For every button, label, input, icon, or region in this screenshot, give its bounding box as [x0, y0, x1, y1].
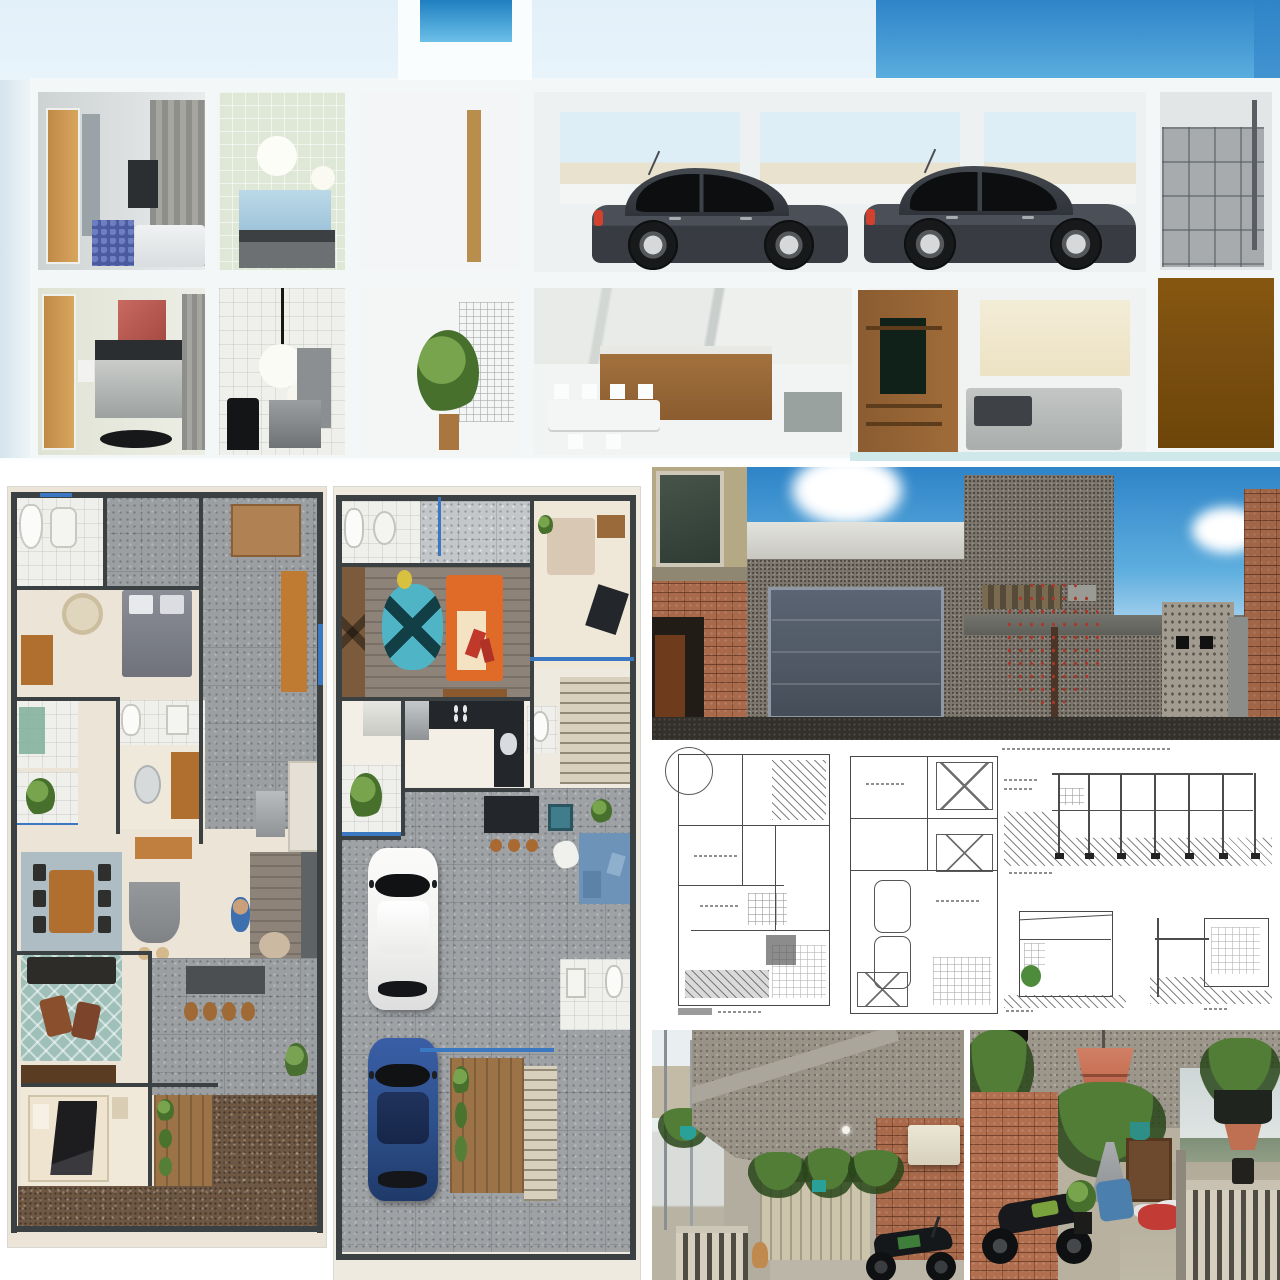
island-stools — [490, 839, 502, 852]
island-counter — [129, 882, 180, 943]
staircase — [560, 677, 635, 784]
dining-table — [49, 870, 94, 933]
garage — [534, 92, 1146, 272]
wall — [336, 495, 636, 501]
black-fixture — [227, 398, 259, 450]
wall — [14, 586, 198, 590]
upper-bathroom — [219, 92, 345, 270]
columns — [1058, 773, 1060, 855]
car-taillight — [594, 210, 603, 226]
grey-tile-hall — [420, 501, 530, 564]
closet-room — [530, 501, 636, 668]
orange-sofa — [446, 575, 503, 680]
mirror — [82, 114, 100, 236]
upper-hall — [359, 92, 520, 270]
curtain — [182, 294, 205, 450]
legend-text — [718, 1011, 762, 1013]
void-x — [936, 762, 993, 810]
kitchen-dining — [534, 288, 852, 455]
section-render-panel — [0, 0, 1280, 461]
round-rug-small — [259, 932, 290, 959]
brown-door — [655, 635, 685, 719]
stove-burners — [454, 705, 459, 713]
concrete-column — [1176, 1150, 1186, 1280]
window-marker — [530, 657, 634, 661]
dining-rug — [21, 852, 123, 951]
cobble-gate-block — [1162, 602, 1234, 719]
potted-plant — [1066, 1180, 1096, 1214]
bathroom-top — [340, 501, 420, 564]
stair-tower-window — [420, 0, 512, 42]
wall — [401, 701, 405, 836]
room-label — [936, 900, 980, 902]
tv-sideboard — [21, 1065, 116, 1083]
moto-wheel — [866, 1252, 896, 1280]
legend-swatch — [678, 1008, 712, 1015]
wall — [340, 697, 530, 701]
plan-wall-line — [742, 755, 743, 885]
room-label — [694, 855, 739, 857]
wall — [340, 563, 530, 567]
car-handle — [946, 216, 958, 219]
tv-wood-panel — [858, 290, 958, 454]
slab-edge — [652, 567, 747, 581]
sink — [375, 513, 394, 543]
black-counter — [429, 700, 494, 730]
bbq-patio — [148, 958, 320, 1095]
wall — [336, 1254, 636, 1260]
gate-bay — [1160, 92, 1272, 270]
pillow — [33, 1104, 48, 1129]
green-shower — [19, 707, 44, 755]
balustrade-right — [1186, 1180, 1280, 1280]
carport-photo-panel — [652, 1030, 964, 1280]
cad-section-long — [1004, 760, 1272, 868]
round-rug — [62, 593, 103, 635]
black-blanket — [50, 1101, 97, 1176]
patio-stools — [184, 1002, 198, 1021]
dark-blanket — [974, 396, 1032, 426]
toilet — [607, 967, 620, 996]
fire-pit — [548, 804, 572, 831]
terrace-photo-panel — [970, 1030, 1280, 1280]
wall — [336, 495, 342, 1260]
drawing-title — [1006, 1010, 1033, 1012]
car-roof — [377, 1092, 429, 1144]
blue-bag — [1095, 1178, 1134, 1222]
winter-garden — [359, 288, 520, 455]
aqua-ground-line — [850, 452, 1280, 461]
chairs-right — [98, 864, 111, 882]
facade-render-panel — [652, 467, 1280, 740]
garage-door — [768, 587, 944, 719]
lower-bedroom — [38, 288, 205, 455]
hanging-fern — [848, 1150, 904, 1194]
kitchen-counter — [288, 761, 320, 852]
car-handle — [740, 217, 752, 220]
plan-wall-line — [927, 757, 928, 870]
cad-plan-1 — [678, 754, 830, 1006]
stone-hall — [103, 495, 198, 586]
car-dark-1 — [592, 166, 848, 270]
brown-armchair — [39, 994, 74, 1038]
cad-section-b — [1150, 912, 1272, 1006]
pot-rim — [1074, 1074, 1136, 1077]
note-text — [1004, 779, 1039, 781]
moto-wheel — [982, 1228, 1018, 1264]
wood-door — [48, 110, 78, 262]
mirror — [369, 1071, 374, 1079]
office-chair — [136, 767, 159, 802]
desk — [171, 752, 199, 819]
bush — [285, 1043, 307, 1079]
floor-line — [1019, 939, 1112, 940]
gate-fittings — [1176, 636, 1189, 649]
teal-pot — [680, 1126, 696, 1140]
hatch — [1211, 927, 1260, 974]
wall — [148, 951, 152, 1187]
cad-section-a — [1004, 902, 1126, 1010]
counter-leg — [494, 700, 524, 787]
hanging-fern — [748, 1152, 808, 1198]
neighbor-right-brick — [1244, 489, 1280, 719]
wardrobe — [340, 565, 365, 700]
home-office — [116, 745, 205, 829]
black-bin — [1232, 1158, 1254, 1184]
detail-circle — [665, 747, 713, 795]
patio-table — [231, 504, 301, 557]
side-garden — [340, 765, 401, 836]
rug-beige — [547, 518, 596, 575]
car-wheel — [764, 220, 814, 270]
drawing-title — [1204, 1008, 1228, 1010]
note-text — [1004, 788, 1033, 790]
white-bed — [135, 225, 205, 267]
toilet — [346, 510, 362, 546]
wall — [340, 836, 401, 840]
wall — [103, 495, 107, 586]
window-marker — [318, 624, 323, 685]
cyan-rug — [382, 584, 443, 670]
bed-headboard — [95, 340, 185, 360]
car-wheel — [904, 218, 956, 270]
wall — [317, 492, 323, 1233]
car-outline — [874, 936, 911, 989]
upper-bedroom — [38, 92, 205, 270]
bathroom-3 — [116, 700, 205, 746]
wall — [116, 697, 120, 834]
tall-plant — [417, 330, 479, 416]
mirror — [432, 1071, 437, 1079]
car-handle — [1022, 216, 1034, 219]
teal-bucket — [1130, 1122, 1150, 1140]
nightstand — [112, 1097, 127, 1119]
bedroom-2 — [21, 1087, 148, 1186]
rear-window — [378, 1171, 427, 1187]
fridge — [403, 700, 430, 740]
bbq-counter — [186, 966, 265, 993]
rear-steps — [524, 1066, 558, 1201]
hatch-deck — [772, 945, 826, 998]
void-x — [936, 834, 993, 872]
sink — [52, 509, 75, 545]
rear-window — [980, 300, 1130, 376]
sky-patch-right — [876, 0, 1256, 88]
ground-floor-plan-panel — [8, 487, 326, 1247]
plan-wall-line — [679, 825, 829, 826]
concrete-beam — [665, 1030, 899, 1111]
grey-bed — [122, 590, 192, 677]
counter-top — [239, 230, 335, 242]
wall — [530, 495, 534, 788]
balusters — [676, 1233, 748, 1280]
toilet — [21, 506, 41, 548]
nightstand — [78, 360, 94, 382]
planted-patio — [14, 772, 78, 825]
rear-bathroom — [560, 959, 633, 1030]
round-mirror-lights — [257, 136, 297, 176]
plan-wall-line — [691, 930, 829, 931]
window-marker — [40, 493, 72, 497]
car-wheel — [1050, 218, 1102, 270]
yellow-lamp — [397, 570, 412, 589]
glass-wall — [14, 823, 78, 826]
sofa-bed — [966, 388, 1122, 450]
car-roof — [377, 901, 429, 953]
footings — [1055, 853, 1064, 859]
car-dark-2 — [864, 164, 1136, 270]
tv-screen — [880, 318, 926, 394]
wall — [21, 1083, 218, 1087]
orange-bench — [281, 571, 306, 693]
plan-wall-line — [679, 885, 784, 886]
wood-door — [44, 296, 74, 448]
balustrade-left — [676, 1226, 748, 1280]
car-outline — [874, 880, 911, 933]
gravel-strip — [18, 1186, 320, 1229]
window-marker — [420, 1048, 555, 1052]
wall-unit — [908, 1125, 960, 1165]
white-cabinet — [363, 700, 401, 737]
hall-mat — [135, 837, 192, 860]
outer-wall-left — [0, 80, 32, 458]
ground-hatch — [1004, 760, 1272, 868]
mirror — [369, 880, 374, 888]
blue-sofa — [579, 833, 631, 904]
wall — [14, 951, 148, 955]
living-wood-floor — [340, 565, 530, 700]
downpipe — [1252, 100, 1257, 250]
drawing-title — [1009, 872, 1052, 874]
entry-gate — [1162, 127, 1264, 267]
architecture-collage — [0, 0, 1280, 1280]
plant — [26, 778, 55, 815]
vanity — [269, 400, 321, 448]
pillow — [160, 595, 184, 614]
cad-sheet-panel — [652, 744, 1280, 1022]
chaise — [583, 871, 601, 898]
wood-cabinet — [1126, 1138, 1172, 1202]
black-pot — [1074, 1212, 1092, 1234]
dog — [752, 1242, 768, 1268]
neighbor-window — [660, 475, 720, 563]
door-panel-lines — [772, 619, 940, 621]
sink — [168, 707, 188, 733]
brown-entry-door — [1158, 278, 1274, 448]
ground-hatch — [1004, 995, 1126, 1008]
shelf — [597, 515, 624, 538]
hatch-stair — [933, 957, 991, 1006]
bushes — [453, 1066, 469, 1096]
windshield — [375, 874, 430, 897]
bushes — [157, 1099, 174, 1123]
wall — [630, 495, 636, 1260]
light-bulb — [842, 1126, 850, 1134]
hall-wood-band — [467, 110, 481, 262]
slab-line — [1155, 938, 1209, 940]
neighbor-left — [652, 467, 747, 719]
wood-bench — [21, 635, 53, 684]
street-ground — [652, 717, 1280, 740]
lower-bathroom — [219, 288, 345, 455]
windshield — [375, 1064, 430, 1087]
kitchen-wood-floor — [250, 852, 320, 966]
blue-car-topview — [368, 1038, 438, 1201]
white-car-topview — [368, 848, 438, 1011]
wall — [199, 495, 203, 845]
tv-panel — [128, 160, 158, 208]
plant-pot — [439, 414, 459, 450]
motorcycle — [864, 1216, 964, 1280]
wall — [401, 788, 530, 792]
stair-tower — [398, 0, 532, 80]
vanity-cabinet — [239, 242, 335, 268]
island — [484, 796, 539, 832]
person-figure — [231, 897, 250, 931]
room-label — [700, 905, 739, 907]
plant — [538, 515, 553, 535]
wall — [11, 1226, 323, 1232]
mirror — [432, 880, 437, 888]
living-rug — [21, 954, 123, 1060]
wood-deck — [450, 1058, 523, 1193]
wall — [11, 492, 17, 1233]
black-planter — [1214, 1090, 1272, 1124]
bathroom-1 — [14, 495, 103, 586]
sofa-grey — [784, 392, 842, 432]
bed-2 — [28, 1095, 108, 1182]
hatch-stair — [748, 893, 787, 926]
railing — [1058, 788, 1085, 805]
cad-plan-2 — [850, 756, 998, 1014]
moto-wheel — [926, 1252, 956, 1280]
upper-floor-plan-panel — [334, 487, 640, 1280]
window-marker — [438, 497, 441, 556]
garage-cornice — [747, 522, 964, 562]
floor-line — [1052, 810, 1253, 811]
rear-window — [378, 981, 427, 997]
bed — [95, 360, 185, 418]
toilet — [533, 713, 547, 740]
roof-line — [1052, 773, 1253, 775]
shelves — [866, 404, 942, 408]
sink — [568, 970, 584, 996]
appliance — [256, 791, 285, 837]
brown-armchair — [70, 1001, 101, 1041]
tv-room — [868, 288, 1146, 455]
hatch-patio — [772, 760, 826, 820]
dimension-text — [1002, 748, 1172, 750]
dark-furniture — [585, 584, 628, 635]
balusters — [1186, 1190, 1280, 1280]
blue-armchair — [92, 220, 134, 266]
blue-window — [239, 190, 331, 230]
hatch-gravel — [685, 970, 769, 998]
pillow — [129, 595, 153, 614]
plan-wall-line — [851, 818, 997, 819]
rail-top — [676, 1226, 748, 1233]
plant — [350, 773, 382, 820]
dining-table — [548, 400, 660, 430]
toilet — [123, 706, 139, 734]
car-taillight — [866, 209, 875, 225]
dark-sofa — [27, 957, 117, 985]
grey-fence — [1228, 617, 1248, 719]
dining-chairs — [554, 384, 569, 399]
sink — [500, 733, 517, 756]
chairs-left — [33, 864, 46, 882]
plan-wall-line — [851, 870, 997, 871]
car-handle — [669, 217, 681, 220]
room-label — [866, 783, 907, 785]
bathroom-2 — [14, 700, 78, 768]
pillow — [606, 853, 625, 877]
counter-top — [600, 346, 772, 354]
black-oval-rug — [100, 430, 172, 448]
car-wheel — [628, 220, 678, 270]
teal-object — [812, 1180, 826, 1192]
plant-green — [1021, 965, 1041, 987]
wall — [14, 697, 116, 701]
